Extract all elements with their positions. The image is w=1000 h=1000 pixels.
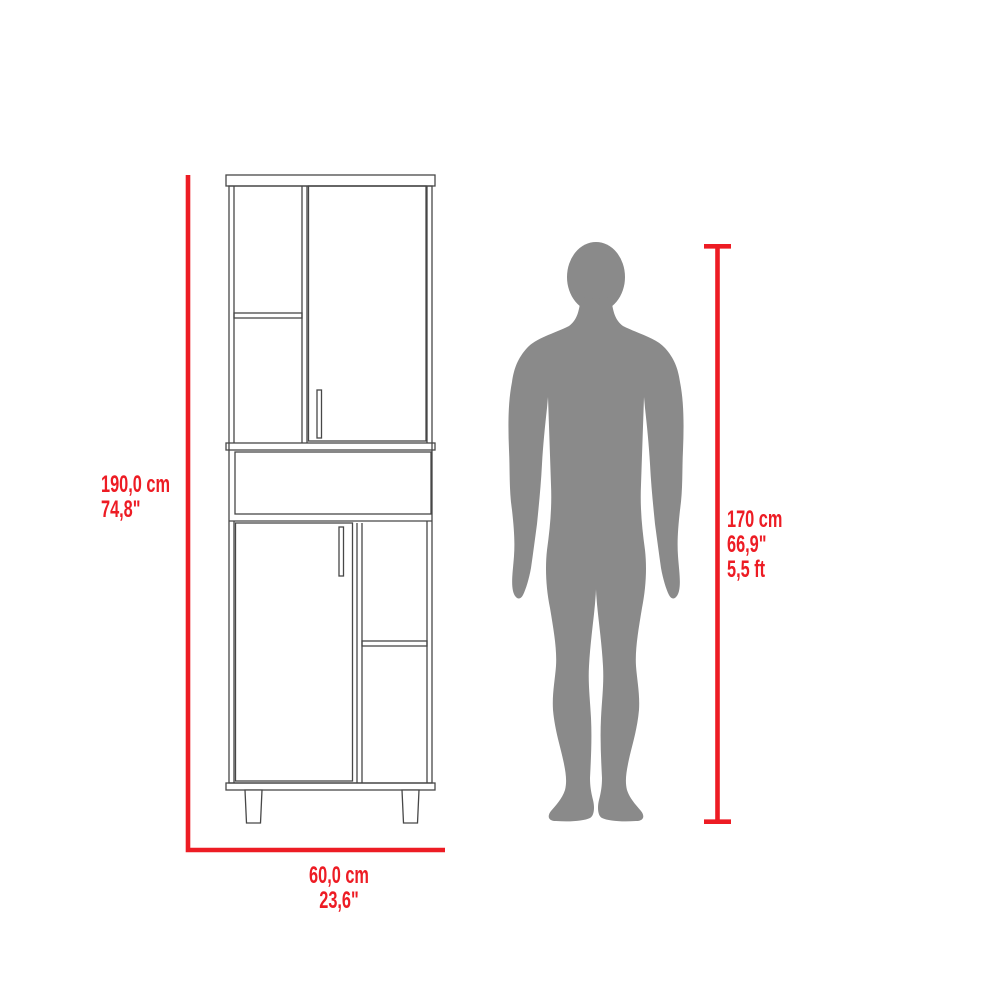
silhouette-body-left: [508, 297, 596, 821]
cabinet-carcass: [229, 186, 432, 783]
drawer-front: [235, 452, 431, 514]
cabinet-width-cm: 60,0 cm: [271, 863, 407, 888]
cabinet-width-inches: 23,6": [271, 888, 407, 913]
cabinet-width-label: 60,0 cm 23,6": [271, 863, 407, 913]
person-height-cm: 170 cm: [727, 507, 782, 532]
person-height-feet: 5,5 ft: [727, 557, 782, 582]
human-silhouette: [508, 242, 683, 821]
lower-shelf: [362, 641, 427, 646]
lower-door-handle: [339, 527, 344, 576]
base-board: [226, 783, 435, 790]
upper-door: [309, 186, 427, 441]
cabinet-dimension-lines: [188, 175, 445, 850]
left-leg: [245, 790, 262, 823]
silhouette-body-right: [596, 297, 684, 821]
person-height-inches: 66,9": [727, 532, 782, 557]
height-width-dimension-line: [188, 175, 445, 850]
lower-door: [236, 523, 353, 781]
upper-shelf: [234, 313, 302, 318]
cabinet-height-cm: 190,0 cm: [101, 472, 170, 497]
person-height-label: 170 cm 66,9" 5,5 ft: [727, 507, 782, 582]
upper-door-handle: [317, 390, 322, 438]
right-leg: [402, 790, 419, 823]
middle-board: [226, 443, 435, 450]
dimension-diagram: 190,0 cm 74,8" 170 cm 66,9" 5,5 ft 60,0 …: [0, 0, 1000, 1000]
cabinet-drawing: [226, 175, 435, 823]
cabinet-height-label: 190,0 cm 74,8": [101, 472, 170, 522]
cabinet-top-board: [226, 175, 435, 186]
cabinet-height-inches: 74,8": [101, 497, 170, 522]
